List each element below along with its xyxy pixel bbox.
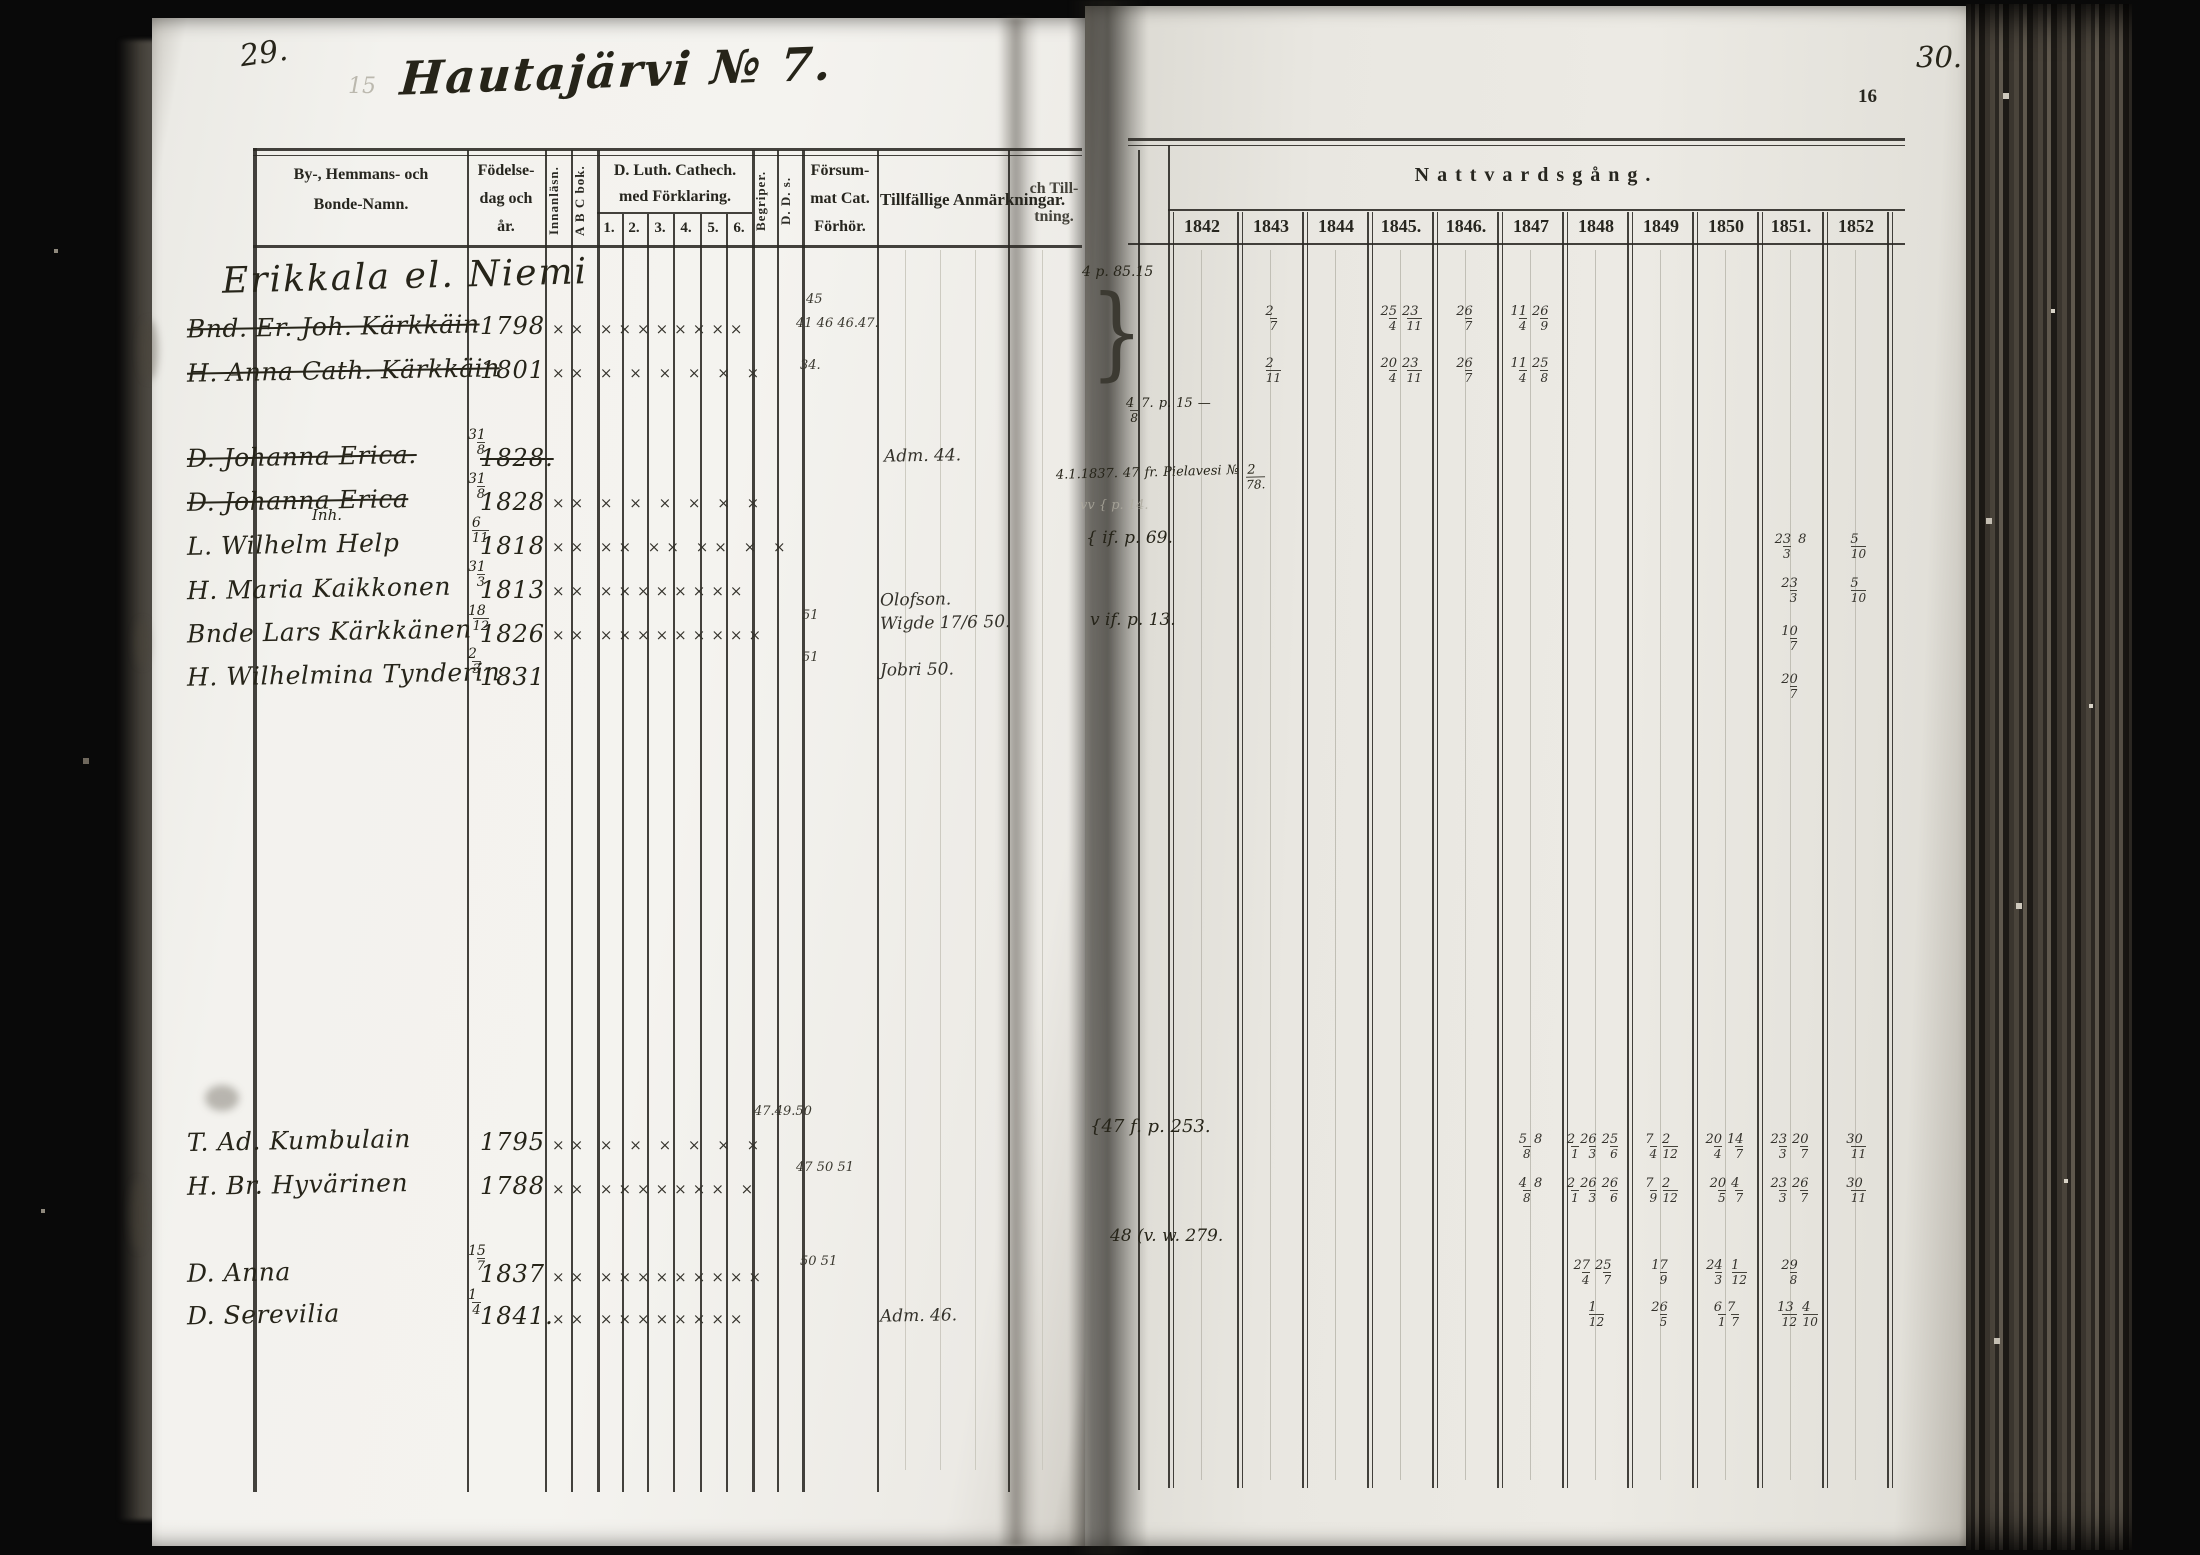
row-name: H. Br. Hyvärinen [187,1168,409,1201]
reading-marks: ×× × × × × × × [552,364,765,382]
table-rule [647,214,649,1492]
birth-year: 1831 [480,663,545,691]
reading-marks: ×× ×××××××× [552,320,748,338]
reading-marks: ×× × × × × × × [552,1136,765,1154]
reading-marks: ×× ××××××××× [552,626,767,644]
spine-note: 48 (v. w. 279. [1110,1226,1223,1246]
date-fraction: 3011 [1848,1133,1865,1160]
date-fraction: 114 [1512,305,1529,332]
table-rule [1128,145,1905,146]
exam-note: 41 46 46.47. [796,316,879,331]
row-name: Bnde Lars Kärkkänen [187,615,472,649]
communion-dates: 2338 [1765,528,1823,560]
catechism-subcolumn: 3. [648,220,672,237]
reading-marks: ×× ×××××××× [552,1310,748,1328]
catechism-subcolumn: 6. [727,220,751,237]
row-name: T. Ad. Kumbulain [187,1124,411,1157]
date-fraction: 112 [1587,1301,1602,1328]
table-rule [1042,250,1043,1470]
date-fraction: 179 [1653,1259,1670,1286]
catechism-subcolumn: 1. [597,220,621,237]
exam-note: 51 [802,608,819,623]
date-fraction: 61 [1716,1301,1724,1328]
date-fraction: 263 [1582,1133,1599,1160]
table-rule [253,155,1082,156]
date-fraction: 233 [1783,577,1800,604]
date-fraction: 3011 [1848,1177,1865,1204]
date-fraction: 254 [1382,305,1399,332]
row-name: Bnd. Er. Joh. Kärkkäin [187,309,480,343]
date-fraction: 107 [1783,625,1800,652]
communion-dates: 112 [1564,1296,1630,1328]
table-rule [1530,250,1531,1480]
ghost-folio-number: 15 [348,74,376,99]
dust-specks [0,0,2,2]
communion-dates: 233267 [1765,1172,1823,1204]
table-rule [802,150,805,1492]
communion-dates: 233207 [1765,1128,1823,1160]
date-fraction: 48 [1521,1177,1529,1204]
annotation: Adm. 46. [880,1305,957,1326]
catechism-subcolumn: 4. [674,220,698,237]
margin-note: Inh. [312,506,342,524]
table-rule [1201,250,1202,1480]
table-rule [1128,138,1905,141]
column-header-abc-book: A B C bok. [572,158,596,244]
column-header-name: By-, Hemmans- och [258,166,464,184]
date-token: 8 [1534,1176,1542,1191]
column-header-birth: år. [468,218,544,236]
communion-dates: 114269 [1505,300,1563,332]
table-rule [1302,212,1304,1488]
birth-year: 1837 [480,1260,545,1288]
table-rule [1887,212,1889,1488]
date-fraction: 278. [1244,463,1264,490]
date-token: p. [1159,396,1171,411]
date-fraction: 265 [1653,1301,1670,1328]
date-fraction: 204 [1707,1133,1724,1160]
date-fraction: 269 [1534,305,1551,332]
date-fraction: 243 [1708,1259,1725,1286]
year-header: 1847 [1501,216,1561,237]
year-header: 1845. [1371,216,1431,237]
exam-note: 45 [806,292,823,307]
annotation: Adm. 44. [884,445,961,466]
table-rule [752,150,755,1492]
communion-dates: 510 [1830,572,1888,604]
margin-smudge [140,320,158,380]
table-rule [1367,212,1369,1488]
communion-dates: 3011 [1830,1172,1888,1204]
date-fraction: 207 [1783,673,1800,700]
spine-note: {47 f. p. 253. [1090,1116,1211,1137]
birth-year: 1795 [480,1128,545,1156]
date-fraction: 21 [1569,1133,1577,1160]
year-header: 1852 [1826,216,1886,237]
date-fraction: 77 [1729,1301,1737,1328]
table-rule [1335,250,1336,1480]
table-rule [1497,212,1499,1488]
table-rule [545,150,547,1492]
spine-note: v if. p. 13. [1090,610,1176,630]
date-fraction: 274 [1575,1259,1592,1286]
table-rule [1502,212,1503,1488]
year-header: 1842 [1172,216,1232,237]
catechism-subcolumn: 2. [622,220,646,237]
table-rule [1697,212,1698,1488]
year-header: 1846. [1436,216,1496,237]
year-header: 1851. [1761,216,1821,237]
folio-number-right: 30. [1916,40,1962,74]
spine-note: { if. p. 69. [1086,528,1173,548]
table-rule [1168,209,1905,211]
table-rule [1892,212,1893,1488]
table-rule [700,214,702,1492]
reading-marks: ×× ×××××××× [552,582,748,600]
table-rule [1008,150,1010,1492]
table-rule [726,214,728,1492]
reading-marks: ×× ××××××× × [552,1180,759,1198]
reading-marks: ×× × × × × × × [552,494,765,512]
table-rule [622,214,624,1492]
date-fraction: 510 [1849,533,1864,560]
communion-dates: 510 [1830,528,1888,560]
margin-smudge [130,1180,146,1250]
spine-note: 4.1.1837.47fr.Pielavesi№278. [1056,457,1269,496]
table-rule [1372,212,1373,1488]
date-token: — [1198,396,1211,411]
spine-note: 487.p.15— [1128,390,1216,424]
communion-dates: 243112 [1700,1254,1758,1286]
date-token: 47 [1123,466,1140,481]
column-header-missed-exam: Förhör. [803,218,877,236]
table-rule [1465,250,1466,1480]
date-fraction: 79 [1647,1177,1655,1204]
reading-marks: ×× ×× ×× ×× × × [552,538,792,556]
table-rule [1128,243,1905,245]
year-header: 1850 [1696,216,1756,237]
communion-dates: 211 [1245,352,1303,384]
table-rule [1432,212,1434,1488]
book-scan: 29. 15 Hautajärvi № 7. 30. 16 By-, Hemma… [0,0,2200,1555]
communion-dates: 488 [1505,1172,1563,1204]
date-fraction: 233 [1772,1133,1789,1160]
annotation: Olofson. [880,589,952,610]
date-fraction: 74 [1647,1133,1655,1160]
communion-dates: 3011 [1830,1128,1888,1160]
communion-dates: 207 [1765,668,1823,700]
column-header-catechism: D. Luth. Cathech. [599,162,751,180]
table-rule [1632,212,1633,1488]
table-rule [940,250,941,1470]
printed-folio-number: 16 [1858,86,1877,108]
date-fraction: 267 [1458,305,1475,332]
column-header-name: Bonde-Namn. [258,196,464,214]
communion-dates: 267 [1440,352,1498,384]
communion-dates: 588 [1505,1128,1563,1160]
row-name: H. Wilhelmina Tynderin [187,657,501,691]
date-fraction: 21 [1569,1177,1577,1204]
annotation: Wigde 17/6 50. [880,612,1011,634]
table-rule [1270,250,1271,1480]
table-rule [777,150,779,1492]
date-fraction: 266 [1604,1177,1621,1204]
table-rule [1762,212,1763,1488]
communion-dates: 274257 [1564,1254,1630,1286]
communion-dates: 21263266 [1564,1172,1630,1204]
date-token: 8 [1798,532,1806,547]
date-fraction: 112 [1730,1259,1745,1286]
date-fraction: 204 [1382,357,1399,384]
communion-dates: 267 [1440,300,1498,332]
exam-note: 51 [802,650,819,665]
communion-dates: 204147 [1700,1128,1758,1160]
table-rule [1237,212,1239,1488]
spine-shadow [1068,0,1148,1555]
column-header-removal-partial: ch Till- [1026,180,1082,198]
year-header: 1849 [1631,216,1691,237]
date-token: Pielavesi [1163,463,1222,480]
table-rule [597,150,600,1492]
row-name: H. Anna Cath. Kärkkäin [187,353,500,387]
date-fraction: 48 [1128,397,1136,424]
table-rule [253,148,1082,151]
date-fraction: 258 [1534,357,1551,384]
date-fraction: 114 [1512,357,1529,384]
row-name: L. Wilhelm Help [187,528,400,561]
communion-dates: 27 [1245,300,1303,332]
date-fraction: 2311 [1404,305,1421,332]
right-page [1085,6,1968,1546]
date-fraction: 233 [1772,1177,1789,1204]
date-token: № [1226,463,1239,478]
date-fraction: 23 [470,647,479,676]
spine-note: vv { p. 14. [1080,498,1149,513]
table-rule [253,148,257,1492]
communion-dates: 79212 [1635,1172,1693,1204]
date-fraction: 267 [1458,357,1475,384]
margin-smudge [135,620,149,666]
birth-year: 1798 [480,312,545,340]
table-rule [1168,145,1170,1488]
date-fraction: 205 [1712,1177,1729,1204]
communion-dates: 2042311 [1375,352,1433,384]
date-token: fr. [1144,465,1158,480]
column-header-reading: Innanläsn. [546,158,570,244]
column-header-begriper: Begriper. [753,158,777,244]
page-stack-edge [1966,4,2132,1550]
date-token: 8 [1534,1132,1542,1147]
date-fraction: 207 [1794,1133,1811,1160]
communion-dates: 107 [1765,620,1823,652]
table-rule [905,250,906,1470]
table-rule [597,212,752,214]
communion-dates: 265 [1635,1296,1693,1328]
date-fraction: 510 [1849,577,1864,604]
table-rule [253,245,1082,248]
row-name: D. Johanna Erica. [187,440,417,473]
year-header: 1843 [1241,216,1301,237]
communion-dates: 114258 [1505,352,1563,384]
communion-dates: 233 [1765,572,1823,604]
communion-dates: 20547 [1700,1172,1758,1204]
table-rule [877,150,879,1492]
date-fraction: 27 [1267,305,1275,332]
date-fraction: 47 [1733,1177,1741,1204]
table-rule [975,250,976,1470]
date-fraction: 263 [1582,1177,1599,1204]
row-name: D. Johanna Erica [187,484,409,517]
date-fraction: 2311 [1404,357,1421,384]
column-header-birth: dag och [468,190,544,208]
communion-dates: 21263256 [1564,1128,1630,1160]
year-header: 1844 [1306,216,1366,237]
reading-marks: ×× ××××××××× [552,1268,767,1286]
column-header-missed-exam: Försum- [803,162,877,180]
date-fraction: 256 [1604,1133,1621,1160]
table-rule [1855,250,1856,1480]
date-fraction: 147 [1729,1133,1746,1160]
column-header-communion: Nattvardsgång. [1168,164,1905,187]
communion-dates: 6177 [1700,1296,1758,1328]
exam-note: 50 51 [800,1254,837,1269]
table-rule [1242,212,1243,1488]
date-fraction: 211 [1264,357,1279,384]
exam-note: 47 50 51 [796,1160,854,1175]
date-fraction: 212 [1661,1133,1676,1160]
communion-dates: 1312410 [1765,1296,1835,1328]
date-fraction: 1312 [1779,1301,1796,1328]
date-fraction: 267 [1794,1177,1811,1204]
catechism-subcolumn: 5. [701,220,725,237]
table-rule [1437,212,1438,1488]
date-fraction: 14 [470,1288,479,1317]
row-name: D. Anna [187,1257,291,1288]
birth-year: 1801 [480,356,545,384]
birth-year: 1788 [480,1172,545,1200]
exam-note: 34. [800,358,821,373]
column-header-dds: D. D. s. [778,158,802,244]
row-name: H. Maria Kaikkonen [187,572,451,606]
brace-mark: } [1090,282,1143,383]
communion-dates: 298 [1765,1254,1823,1286]
table-rule [571,150,573,1492]
date-fraction: 233 [1777,533,1794,560]
exam-note: 47.49.50 [754,1104,812,1119]
date-fraction: 257 [1597,1259,1614,1286]
communion-dates: 2542311 [1375,300,1433,332]
date-fraction: 298 [1783,1259,1800,1286]
ink-smudge [205,1085,239,1111]
annotation: Jobri 50. [880,659,954,680]
column-header-birth: Födelse- [468,162,544,180]
column-header-remarks: Tillfällige Anmärkningar. [880,190,1006,210]
date-token: 4.1.1837. [1056,466,1118,483]
table-rule [1307,212,1308,1488]
communion-dates: 179 [1635,1254,1693,1286]
date-fraction: 212 [1661,1177,1676,1204]
date-token: 7. [1141,396,1153,411]
row-name: D. Serevilia [187,1299,340,1331]
folio-number-left: 29. [238,33,290,74]
column-header-missed-exam: mat Cat. [803,190,877,208]
communion-dates: 74212 [1635,1128,1693,1160]
birth-year: 1841. [480,1302,554,1330]
column-header-removal-partial: tning. [1026,208,1082,226]
table-rule [673,214,675,1492]
date-fraction: 58 [1521,1133,1529,1160]
birth-year: 1826 [480,620,545,648]
table-rule [1400,250,1401,1480]
date-fraction: 410 [1801,1301,1816,1328]
year-header: 1848 [1566,216,1626,237]
column-header-catechism: med Förklaring. [599,188,751,206]
date-token: 15 [1176,396,1193,411]
